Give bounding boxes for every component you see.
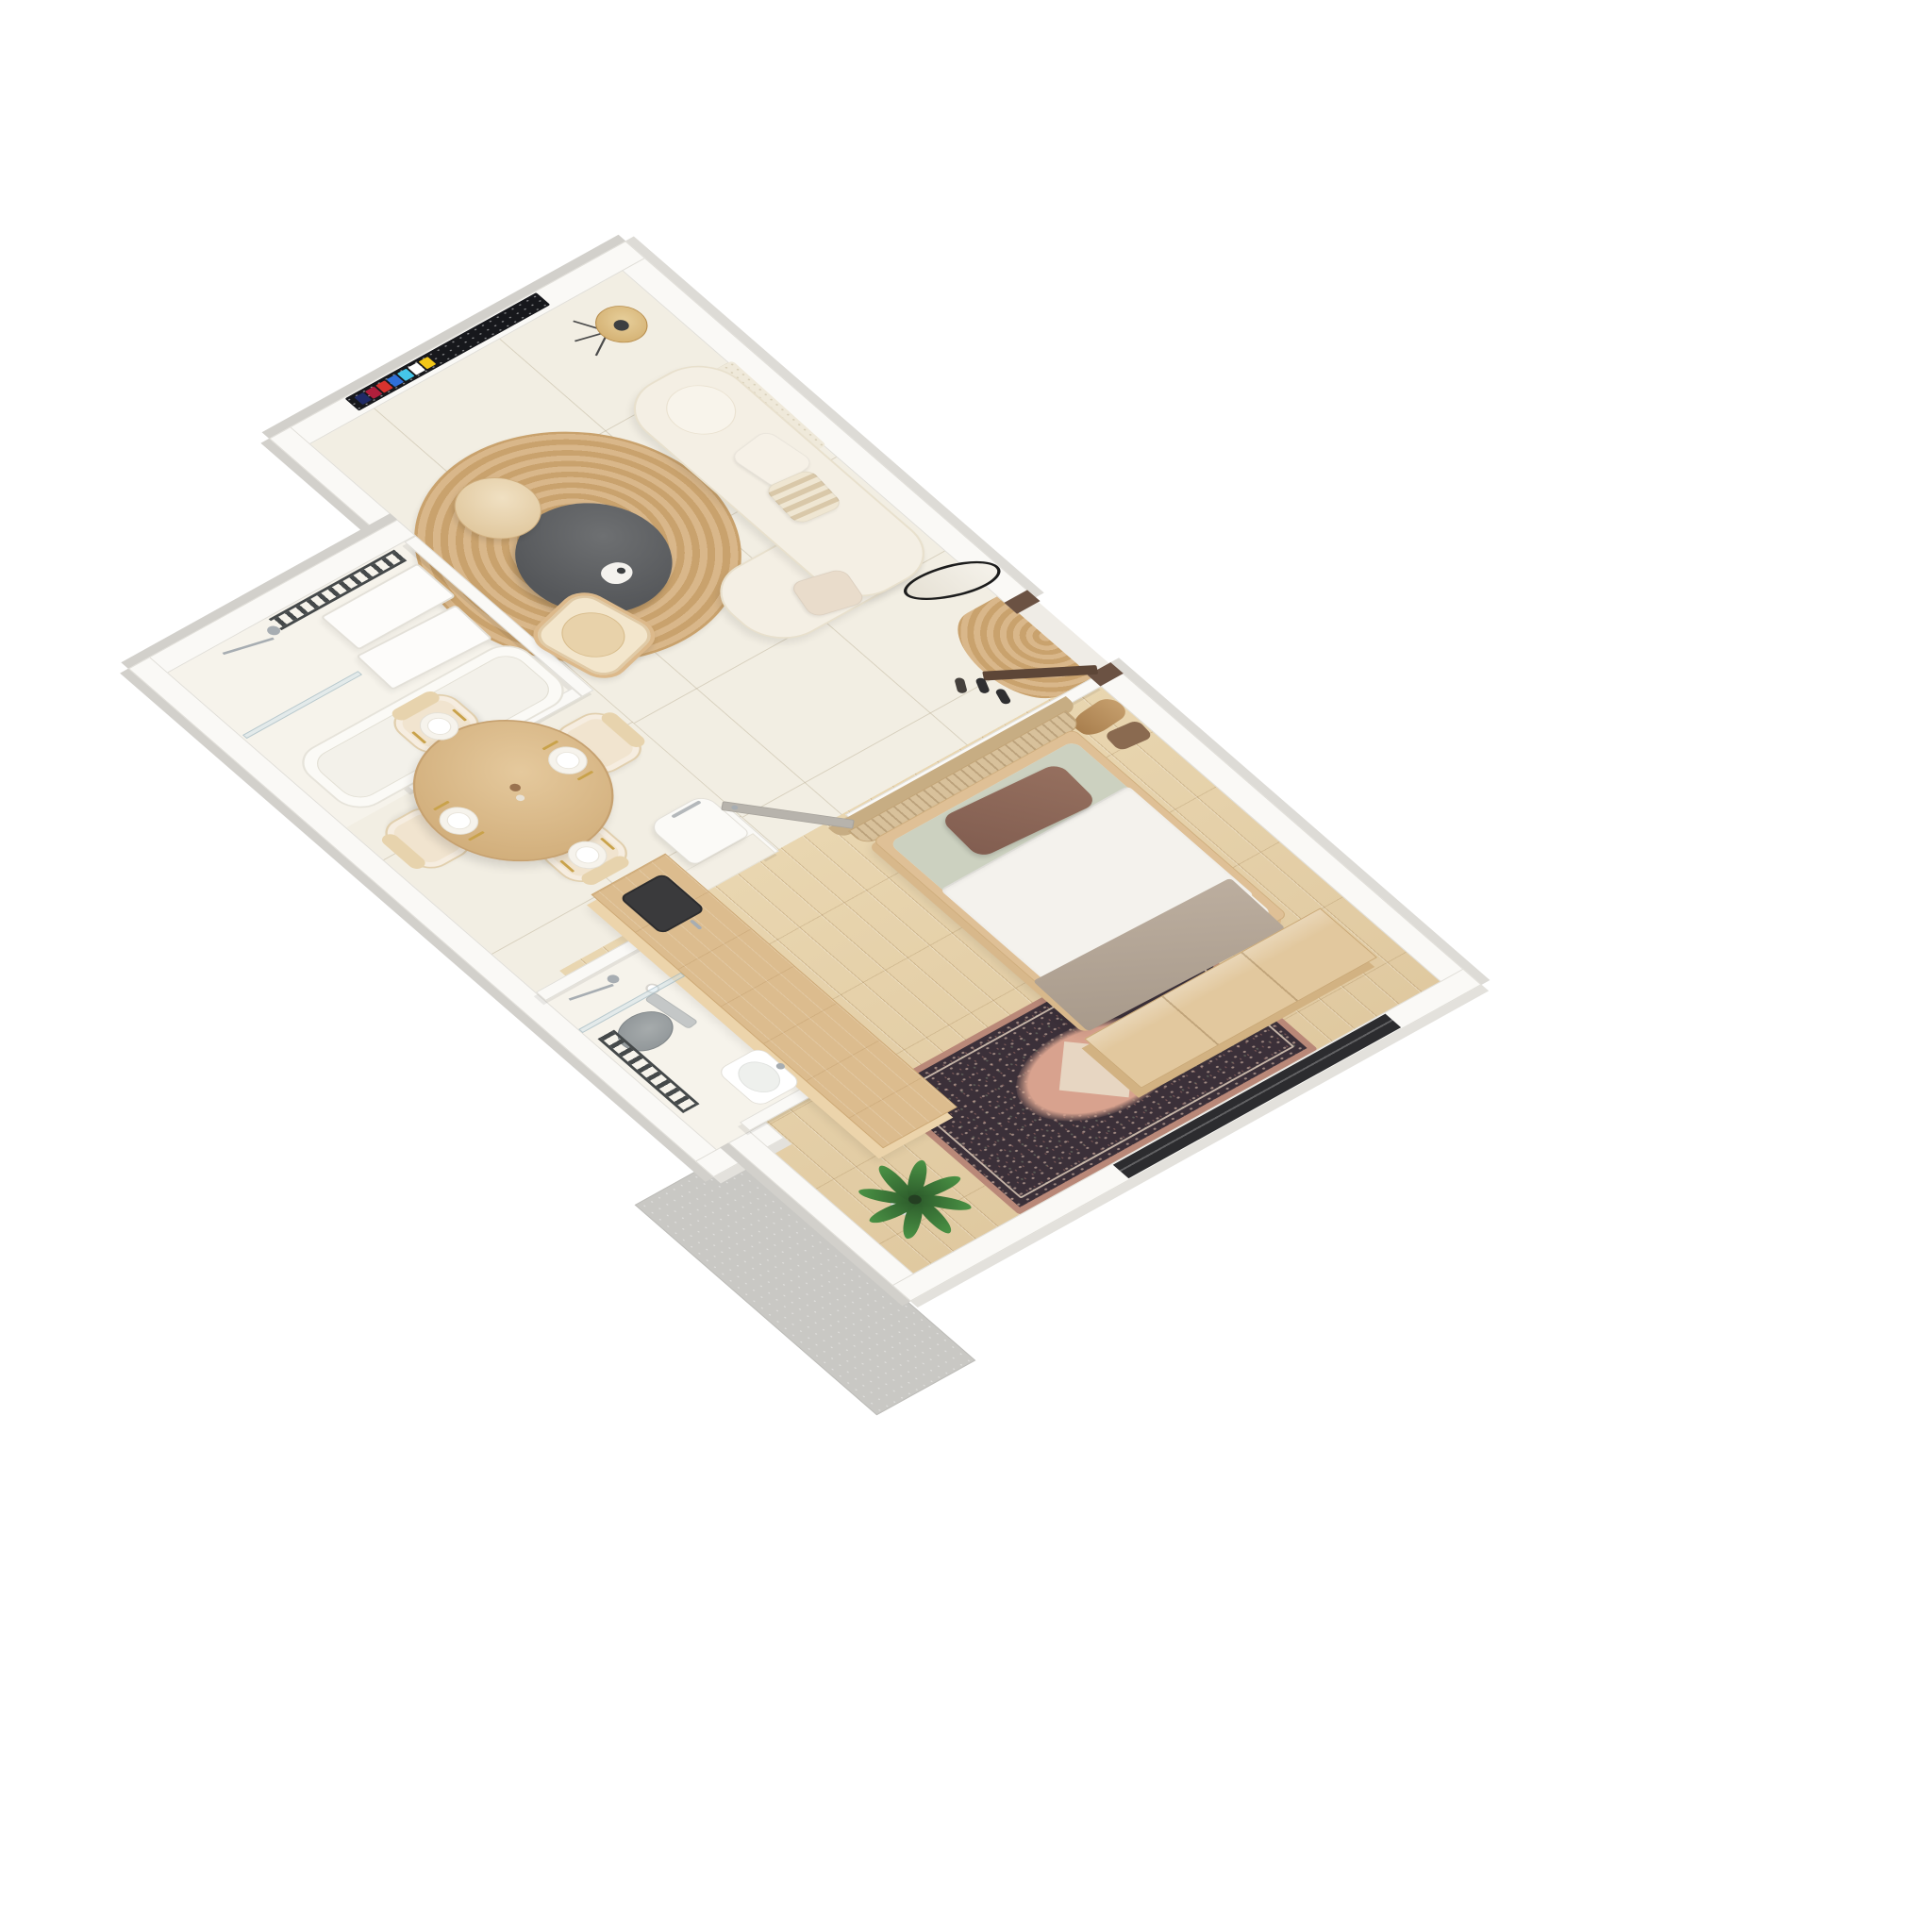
floorplan-canvas — [0, 0, 1932, 1932]
vase — [595, 558, 639, 589]
armchair-cushion — [549, 604, 637, 667]
